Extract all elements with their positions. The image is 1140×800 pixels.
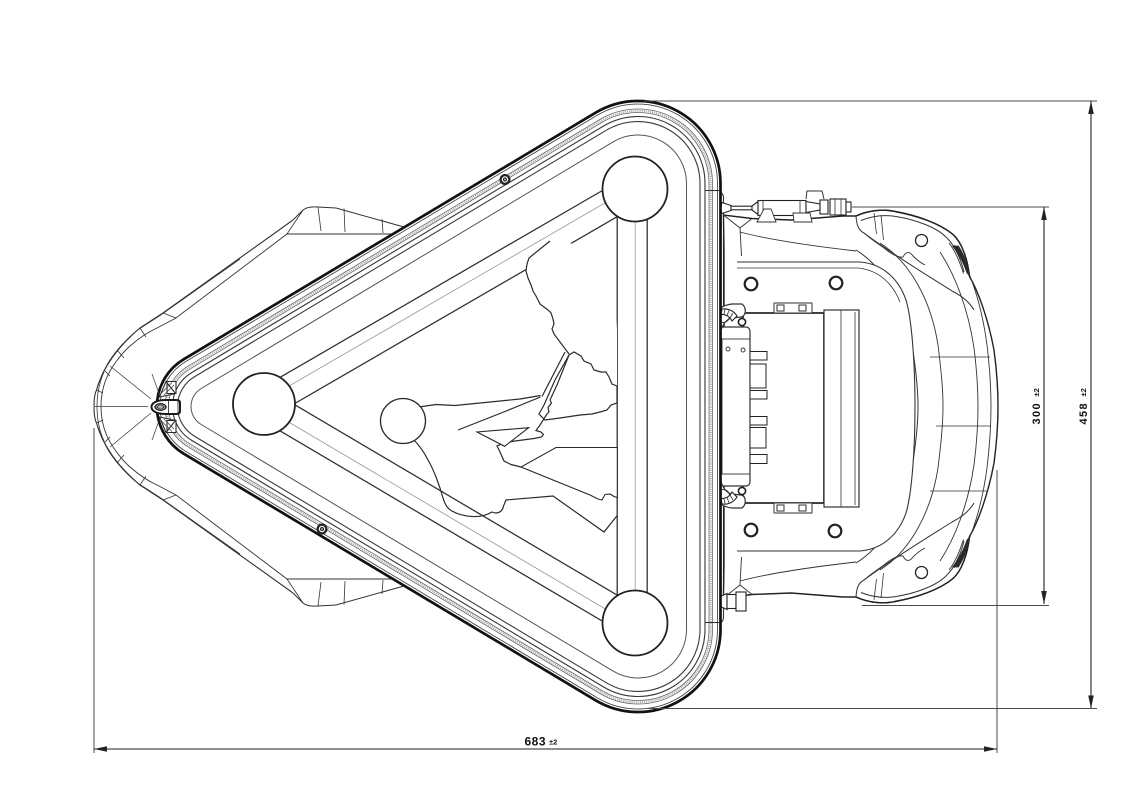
svg-text:±2: ±2 [1079,388,1088,396]
svg-text:±2: ±2 [1032,388,1041,396]
svg-text:683: 683 [525,735,547,749]
svg-text:±2: ±2 [549,738,557,747]
svg-text:300: 300 [1031,402,1043,425]
svg-text:458: 458 [1078,402,1090,425]
